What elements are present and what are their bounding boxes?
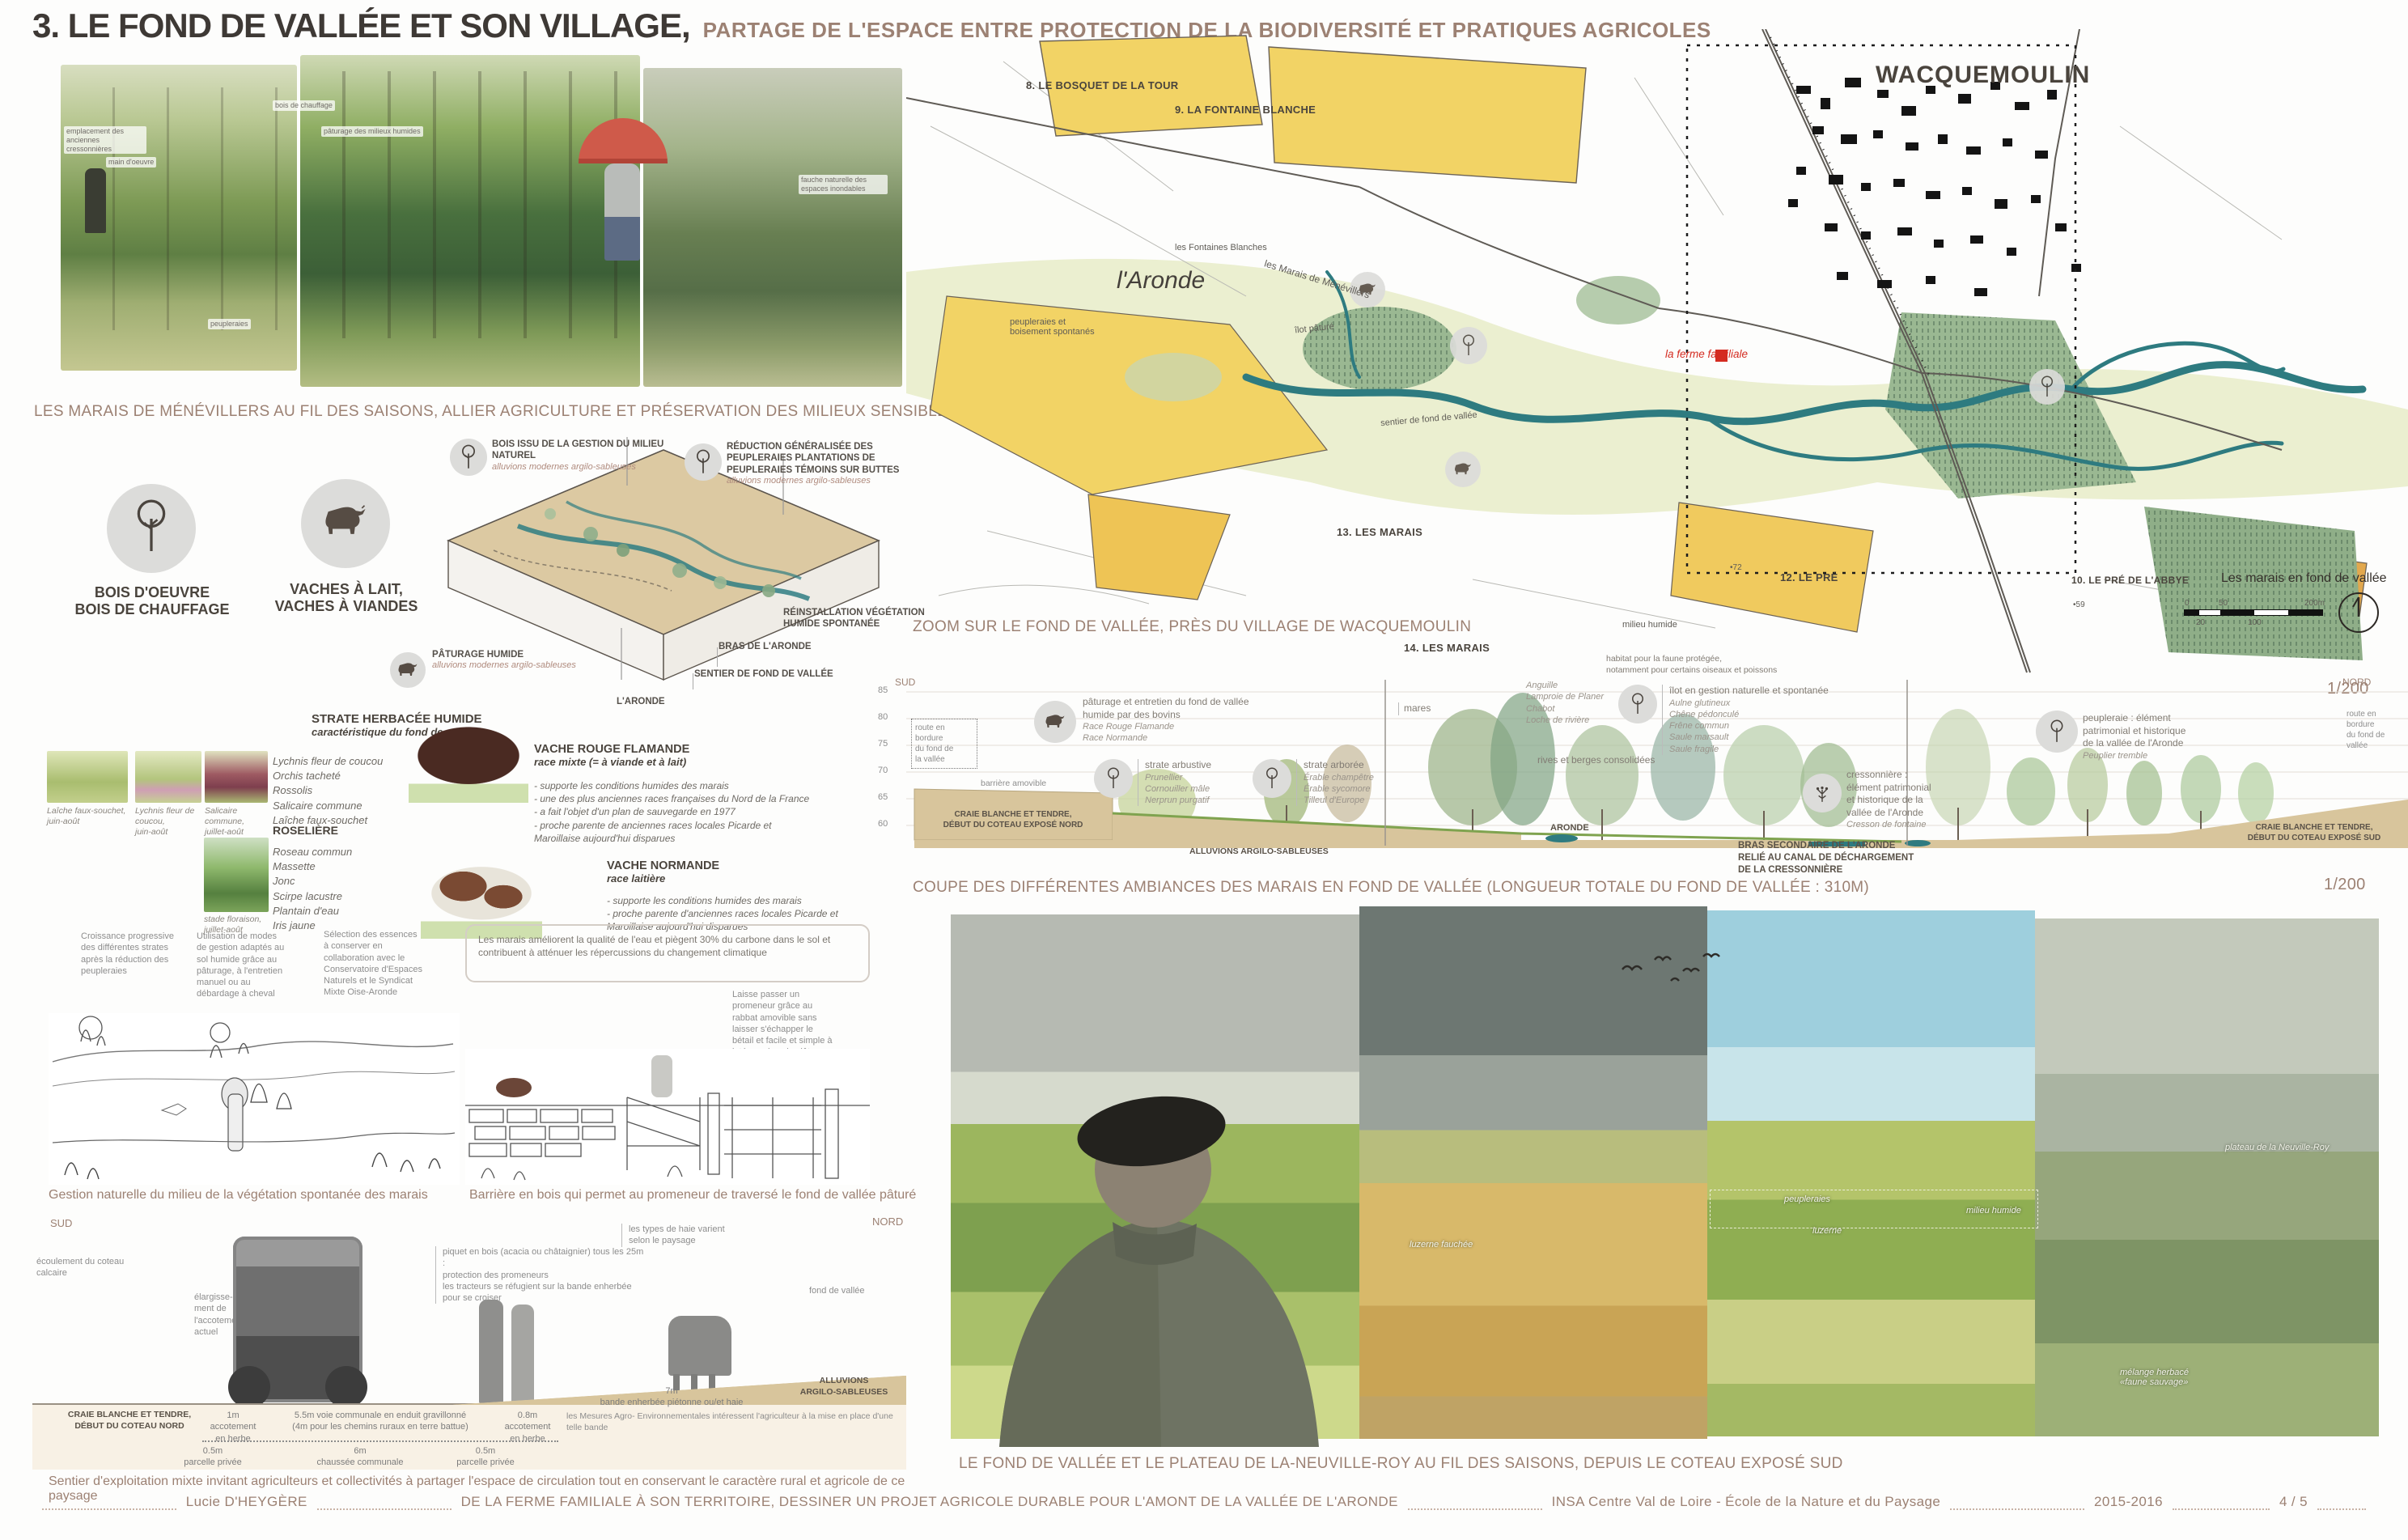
tree-icon	[130, 498, 172, 559]
map-scale-bar: 0 50 200m 20 100	[2185, 599, 2330, 631]
road-craie-label: CRAIE BLANCHE ET TENDRE, DÉBUT DU COTEAU…	[57, 1410, 202, 1432]
flamande-name: VACHE ROUGE FLAMANDE	[534, 743, 874, 756]
normande-text-block: VACHE NORMANDE race laitière - supporte …	[607, 859, 931, 934]
panorama-panel-4	[2035, 918, 2379, 1436]
axon-note-aronde: L'ARONDE	[617, 696, 665, 707]
roseliere-species-list: Roseau commun Massette Jonc Scirpe lacus…	[273, 845, 352, 933]
road-dim-05b: 0.5m parcelle privée	[449, 1445, 522, 1469]
scale-tick-50: 50	[2219, 599, 2228, 608]
coupe-paturage-species: Race Rouge Flamande Race Normande	[1083, 721, 1285, 745]
panorama-label-peupleraies: peupleraies	[1784, 1194, 1830, 1204]
footer-author: Lucie D'HEYGÈRE	[186, 1494, 307, 1510]
flora-thumb-3-caption: Salicaire commune, juillet-août	[205, 806, 274, 838]
coupe-arbustive-note: strate arbustive Prunellier Cornouiller …	[1138, 759, 1266, 806]
road-dim-dotted-line	[202, 1440, 558, 1442]
compass-icon	[2338, 592, 2379, 633]
wood-resource-label: BOIS D'OEUVRE BOIS DE CHAUFFAGE	[50, 584, 254, 618]
coupe-elev-85: 85	[878, 685, 888, 696]
axon-note-sentier: SENTIER DE FOND DE VALLÉE	[694, 668, 833, 680]
footer-school: INSA Centre Val de Loire - École de la N…	[1552, 1494, 1941, 1510]
coupe-tree-icon-arbustive	[1094, 759, 1133, 798]
map-tree-icon	[2029, 369, 2065, 405]
sketch-caption-right: Barrière en bois qui permet au promeneur…	[469, 1188, 916, 1203]
painting-label-bois-chauffage: bois de chauffage	[273, 100, 335, 111]
coupe-elev-65: 65	[878, 791, 888, 803]
map-label-p13: 13. LES MARAIS	[1337, 526, 1422, 538]
map-label-p14: 14. LES MARAIS	[1404, 642, 1490, 654]
species-item: Lychnis fleur de coucou	[273, 754, 383, 769]
footer-dotted-line	[317, 1498, 451, 1510]
coupe-aronde-label: ARONDE	[1550, 822, 1589, 834]
map-legend-title: Les marais en fond de vallée	[2221, 571, 2387, 586]
axon-note-bois: BOIS ISSU DE LA GESTION DU MILIEU NATURE…	[492, 439, 680, 472]
coupe-cow-icon	[1034, 701, 1076, 743]
coupe-peupleraie-note: peupleraie : élément patrimonial et hist…	[2083, 712, 2236, 762]
road-note-haie: les types de haie varient selon le paysa…	[621, 1224, 758, 1247]
road-dim-7m: 7m bande enherbée piétonne ou/et haie	[566, 1385, 777, 1409]
panorama-label-milieu: milieu humide	[1966, 1206, 2021, 1215]
coupe-craie-sud-label: CRAIE BLANCHE ET TENDRE, DÉBUT DU COTEAU…	[2233, 822, 2395, 843]
coupe-route-left-note: route en bordure du fond de la vallée	[911, 719, 977, 769]
coupe-faune-title: habitat pour la faune protégée, notammen…	[1606, 654, 1792, 676]
marais-benefit-box: Les marais améliorent la qualité de l'ea…	[465, 924, 870, 982]
flora-thumb-2-caption: Lychnis fleur de coucou, juin-août	[135, 806, 205, 838]
season-panel-autumn	[643, 68, 902, 387]
sketch-note-barriere: Laisse passer un promeneur grâce au rabb…	[732, 989, 854, 1058]
map-point-72: •72	[1730, 563, 1742, 572]
painting-label-fauche: fauche naturelle des espaces inondables	[799, 175, 888, 194]
man-with-beret-figure	[951, 979, 1404, 1447]
sketch-note-croissance: Croissance progressive des différentes s…	[81, 931, 194, 977]
panorama-label-plateau: plateau de la Neuville-Roy	[2225, 1143, 2329, 1152]
axon-note-bois-title: BOIS ISSU DE LA GESTION DU MILIEU NATURE…	[492, 439, 680, 462]
coupe-bras-label: BRAS SECONDAIRE DE L'ARONDE RELIÉ AU CAN…	[1738, 840, 1914, 876]
coupe-sud-label: SUD	[895, 677, 915, 688]
coupe-arboree-title: strate arborée	[1304, 759, 1425, 772]
map-label-ferme-text: la ferme familiale	[1665, 348, 1748, 360]
map-point-72-value: 72	[1733, 563, 1742, 572]
map-label-fontaines: les Fontaines Blanches	[1175, 243, 1267, 252]
painting-label-main-doeuvre: main d'oeuvre	[106, 157, 156, 168]
map-label-milieu: milieu humide	[1622, 620, 1677, 630]
road-note-mae: les Mesures Agro- Environnementales inté…	[566, 1411, 906, 1433]
normande-type: race laitière	[607, 872, 931, 885]
axon-tree-icon-1	[450, 439, 487, 476]
flamande-type: race mixte (= à viande et à lait)	[534, 756, 874, 768]
flamande-text-block: VACHE ROUGE FLAMANDE race mixte (= à via…	[534, 743, 874, 845]
coupe-caption: COUPE DES DIFFÉRENTES AMBIANCES DES MARA…	[913, 879, 1869, 897]
road-dim-1m: 1m accotement en herbe	[201, 1410, 265, 1445]
axon-note-paturage-title: PÂTURAGE HUMIDE	[432, 649, 610, 660]
road-alluvions-label: ALLUVIONS ARGILO-SABLEUSES	[783, 1376, 905, 1398]
flora-thumb-2	[135, 751, 201, 803]
tree-trunks	[300, 71, 640, 338]
coupe-ilot-title: îlot en gestion naturelle et spontanée	[1669, 685, 1831, 698]
scale-tick-20: 20	[2196, 618, 2205, 627]
coupe-cress-note: cressonnière : élément patrimonial et hi…	[1846, 769, 1976, 831]
footer-dotted-line	[2317, 1498, 2366, 1510]
map-label-peupleraies: peupleraies et boisement spontanés	[1010, 317, 1095, 337]
coupe-tree-icon-arboree	[1253, 759, 1291, 798]
map-point-59: •59	[2073, 600, 2085, 609]
coupe-elev-80: 80	[878, 711, 888, 723]
painting-label-paturage: pâturage des milieux humides	[321, 126, 423, 137]
footer-project-title: DE LA FERME FAMILIALE À SON TERRITOIRE, …	[461, 1494, 1398, 1510]
coupe-paturage-note: pâturage et entretien du fond de vallée …	[1083, 696, 1285, 745]
scale-bar-segments	[2185, 610, 2322, 615]
axon-cow-icon	[390, 652, 426, 688]
painting-label-peupleraies: peupleraies	[208, 319, 251, 329]
wood-resource-icon-circle	[107, 484, 196, 573]
axon-note-reduction-title: RÉDUCTION GÉNÉRALISÉE DES PEUPLERAIES PL…	[727, 441, 931, 476]
roseliere-heading: ROSELIÈRE	[273, 824, 338, 837]
map-label-aronde: l'Aronde	[1117, 267, 1205, 295]
marsh-management-sketch	[49, 1013, 460, 1185]
flora-thumb-4	[204, 838, 269, 912]
road-dim-6m: 6m chaussée communale	[307, 1445, 413, 1469]
horse-rider-figure	[668, 1316, 731, 1376]
tractor-wheel	[228, 1366, 270, 1408]
species-item: Scirpe lacustre	[273, 889, 352, 904]
coupe-arboree-note: strate arborée Érable champêtre Érable s…	[1296, 759, 1425, 806]
map-label-p10: 10. LE PRÉ DE L'ABBYE	[2071, 575, 2189, 586]
axon-note-paturage: PÂTURAGE HUMIDE alluvions modernes argil…	[432, 649, 610, 670]
road-nord-label: NORD	[872, 1215, 903, 1228]
footer-dotted-line	[42, 1498, 176, 1510]
panorama-label-luzerne: luzerne	[1812, 1226, 1842, 1236]
coupe-cress-species: Cresson de fontaine	[1846, 819, 1976, 830]
map-tree-icon	[1450, 327, 1487, 364]
scale-tick-200: 200m	[2304, 599, 2325, 608]
coupe-peupleraie-species: Peuplier tremble	[2083, 750, 2236, 762]
umbrella-person-figure	[604, 163, 640, 261]
road-note-piquet: piquet en bois (acacia ou châtaignier) t…	[435, 1246, 645, 1304]
cow-icon	[320, 504, 371, 544]
coupe-tree-icon-peupleraie	[2036, 711, 2078, 753]
species-item: Orchis tacheté	[273, 769, 383, 783]
map-point-59-value: 59	[2076, 600, 2085, 609]
coupe-arbustive-title: strate arbustive	[1145, 759, 1266, 772]
species-item: Massette	[273, 859, 352, 874]
species-item: Roseau commun	[273, 845, 352, 859]
tractor-wheel	[325, 1366, 367, 1408]
marais-benefit-text: Les marais améliorent la qualité de l'ea…	[478, 934, 857, 959]
cow-resource-label: VACHES À LAIT, VACHES À VIANDES	[261, 581, 432, 615]
coupe-ilot-species: Aulne glutineux Chêne pédonculé Frêne co…	[1669, 698, 1831, 755]
footer-year: 2015-2016	[2094, 1494, 2163, 1510]
scale-tick-100: 100	[2248, 618, 2262, 627]
flora-thumb-1-caption: Laîche faux-souchet, juin-août	[47, 806, 128, 827]
flora-thumb-3	[205, 751, 268, 803]
map-cow-icon	[1445, 452, 1481, 487]
road-note-ecoulement: écoulement du coteau calcaire	[36, 1256, 134, 1279]
coupe-peupleraie-title: peupleraie : élément patrimonial et hist…	[2083, 712, 2236, 750]
painting-label-cressonnieres: emplacement des anciennes cressonnières	[64, 126, 146, 154]
leader-line	[717, 647, 718, 667]
axon-tree-icon-2	[685, 443, 722, 481]
axon-note-paturage-sub: alluvions modernes argilo-sableuses	[432, 660, 610, 670]
species-item: Salicaire commune	[273, 799, 383, 813]
coupe-paturage-title: pâturage et entretien du fond de vallée …	[1083, 696, 1285, 721]
map-label-p8: 8. LE BOSQUET DE LA TOUR	[1026, 79, 1179, 91]
cow-resource-icon-circle	[301, 479, 390, 568]
wood-gate-sketch	[465, 1049, 870, 1185]
road-sud-label: SUD	[50, 1217, 72, 1229]
herbacee-species-list: Lychnis fleur de coucou Orchis tacheté R…	[273, 754, 383, 828]
coupe-rives-note: rives et berges consolidées	[1537, 754, 1655, 767]
flora-thumb-1	[47, 751, 128, 803]
seasons-painting: emplacement des anciennes cressonnières …	[61, 55, 902, 397]
panorama: plateau de la Neuville-Roy peupleraies m…	[951, 906, 2379, 1447]
road-dim-05a: 0.5m parcelle privée	[176, 1445, 249, 1469]
axon-note-reduction: RÉDUCTION GÉNÉRALISÉE DES PEUPLERAIES PL…	[727, 441, 931, 486]
coupe-arboree-species: Érable champêtre Érable sycomore Tilleul…	[1304, 772, 1425, 807]
coupe-faune-species: Anguille Lamproie de Planer Chabot Loche…	[1526, 680, 1604, 726]
axon-note-bras: BRAS DE L'ARONDE	[719, 641, 812, 652]
birds-icon	[1614, 945, 1728, 994]
panorama-panel-3	[1707, 910, 2035, 1436]
footer-page-number: 4 / 5	[2279, 1494, 2308, 1510]
page-title: 3. LE FOND DE VALLÉE ET SON VILLAGE,	[32, 6, 690, 45]
sketch-note-selection: Sélection des essences à conserver en co…	[324, 929, 453, 999]
road-note-fond: fond de vallée	[809, 1285, 865, 1296]
coupe-elev-75: 75	[878, 738, 888, 749]
footer-dotted-line	[2173, 1498, 2270, 1510]
species-item: Jonc	[273, 874, 352, 889]
footer: Lucie D'HEYGÈRE DE LA FERME FAMILIALE À …	[32, 1494, 2376, 1510]
coupe-scale-note: 1/200	[2324, 876, 2366, 894]
coupe-tree-icon-ilot	[1618, 685, 1657, 723]
flamande-cow-image	[409, 717, 528, 803]
coupe-craie-nord-label: CRAIE BLANCHE ET TENDRE, DÉBUT DU COTEAU…	[932, 809, 1094, 830]
map-caption: ZOOM SUR LE FOND DE VALLÉE, PRÈS DU VILL…	[913, 618, 1471, 636]
coupe-mares-note: mares	[1398, 702, 1431, 715]
coupe-arbustive-species: Prunellier Cornouiller mâle Nerprun purg…	[1145, 772, 1266, 807]
footer-dotted-line	[1408, 1498, 1542, 1510]
coupe-elev-70: 70	[878, 765, 888, 776]
axon-note-bois-sub: alluvions modernes argilo-sableuses	[492, 462, 680, 472]
map-label-p12: 12. LE PRÉ	[1780, 571, 1838, 583]
coupe-ilot-note: îlot en gestion naturelle et spontanée A…	[1662, 685, 1831, 755]
coupe-route-right-note: route en bordure du fond de vallée	[2347, 709, 2403, 751]
map-label-p9: 9. LA FONTAINE BLANCHE	[1175, 104, 1316, 116]
panorama-caption: LE FOND DE VALLÉE ET LE PLATEAU DE LA-NE…	[959, 1455, 1843, 1473]
flamande-notes: - supporte les conditions humides des ma…	[534, 779, 874, 845]
seasons-caption: LES MARAIS DE MÉNÉVILLERS AU FIL DES SAI…	[34, 403, 958, 421]
axon-note-reduction-sub: alluvions modernes argilo-sableuses	[727, 476, 931, 486]
sketch-caption-left: Gestion naturelle du milieu de la végéta…	[49, 1188, 428, 1203]
coupe-nord-label: NORD	[2342, 677, 2371, 688]
footer-dotted-line	[1950, 1498, 2084, 1510]
road-dim-55: 5.5m voie communale en enduit gravillonn…	[267, 1410, 494, 1433]
coupe-alluvions-label: ALLUVIONS ARGILO-SABLEUSES	[1189, 846, 1329, 858]
panorama-label-melange: mélange herbacé «faune sauvage»	[2120, 1368, 2189, 1387]
farmer-figure	[85, 168, 106, 233]
map-label-ferme: la ferme familiale	[1665, 348, 1748, 360]
sketch-note-gestion: Utilisation de modes de gestion adaptés …	[197, 931, 318, 1000]
species-item: Plantain d'eau	[273, 904, 352, 918]
road-dim-08: 0.8m accotement en herbe	[495, 1410, 560, 1445]
species-item: Rossolis	[273, 783, 383, 798]
coupe-cress-icon	[1803, 774, 1842, 812]
coupe-cress-title: cressonnière : élément patrimonial et hi…	[1846, 769, 1976, 819]
map-village-label: WACQUEMOULIN	[1876, 62, 2090, 89]
leader-line	[693, 673, 693, 689]
coupe-elev-60: 60	[878, 818, 888, 829]
panorama-label-luzerne-fauchee: luzerne fauchée	[1410, 1240, 1473, 1249]
coupe-barriere-note: barrière amovible	[981, 778, 1046, 790]
scale-tick-0: 0	[2185, 599, 2190, 608]
normande-name: VACHE NORMANDE	[607, 859, 931, 872]
